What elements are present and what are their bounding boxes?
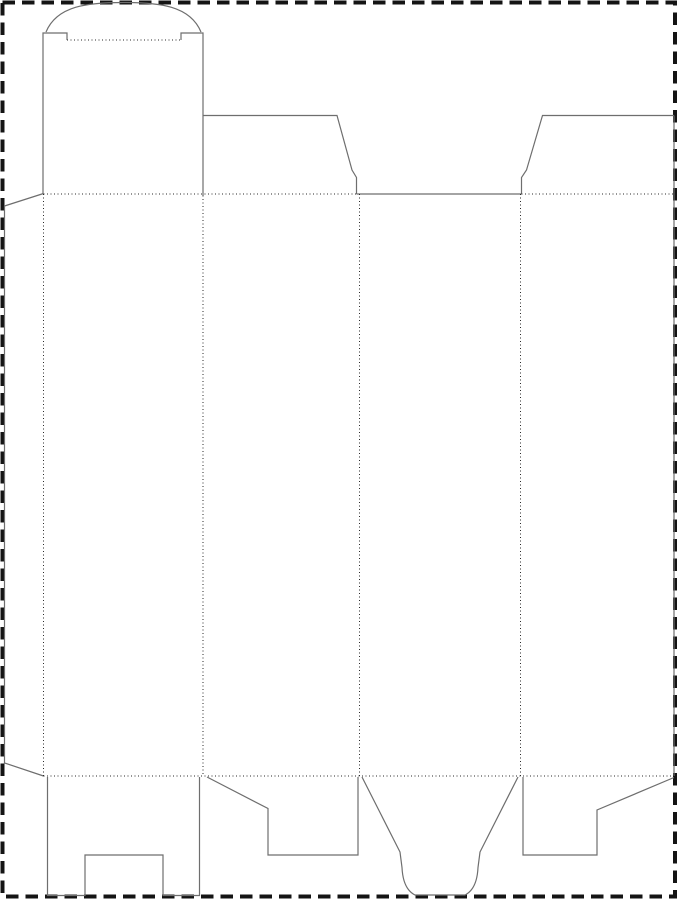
glue-flap-outline <box>5 194 44 777</box>
tuck-flap-arc <box>46 3 201 33</box>
fold-lines <box>44 40 675 776</box>
panel2-dust-flap <box>203 116 357 195</box>
box-dieline-drawing <box>0 0 677 900</box>
dieline-page <box>0 0 677 900</box>
panel4-bottom-lock-flap <box>523 777 674 855</box>
panel3-bottom-tongue <box>362 777 518 895</box>
panel2-bottom-lock-flap <box>207 777 358 855</box>
panel4-dust-flap <box>522 116 675 195</box>
cut-lines <box>5 3 675 896</box>
lid-right-edge-shoulder <box>181 33 203 196</box>
page-dashed-border <box>3 3 676 897</box>
lid-left-edge-shoulder <box>43 33 67 194</box>
panel1-bottom-slotted-flap <box>48 777 200 896</box>
